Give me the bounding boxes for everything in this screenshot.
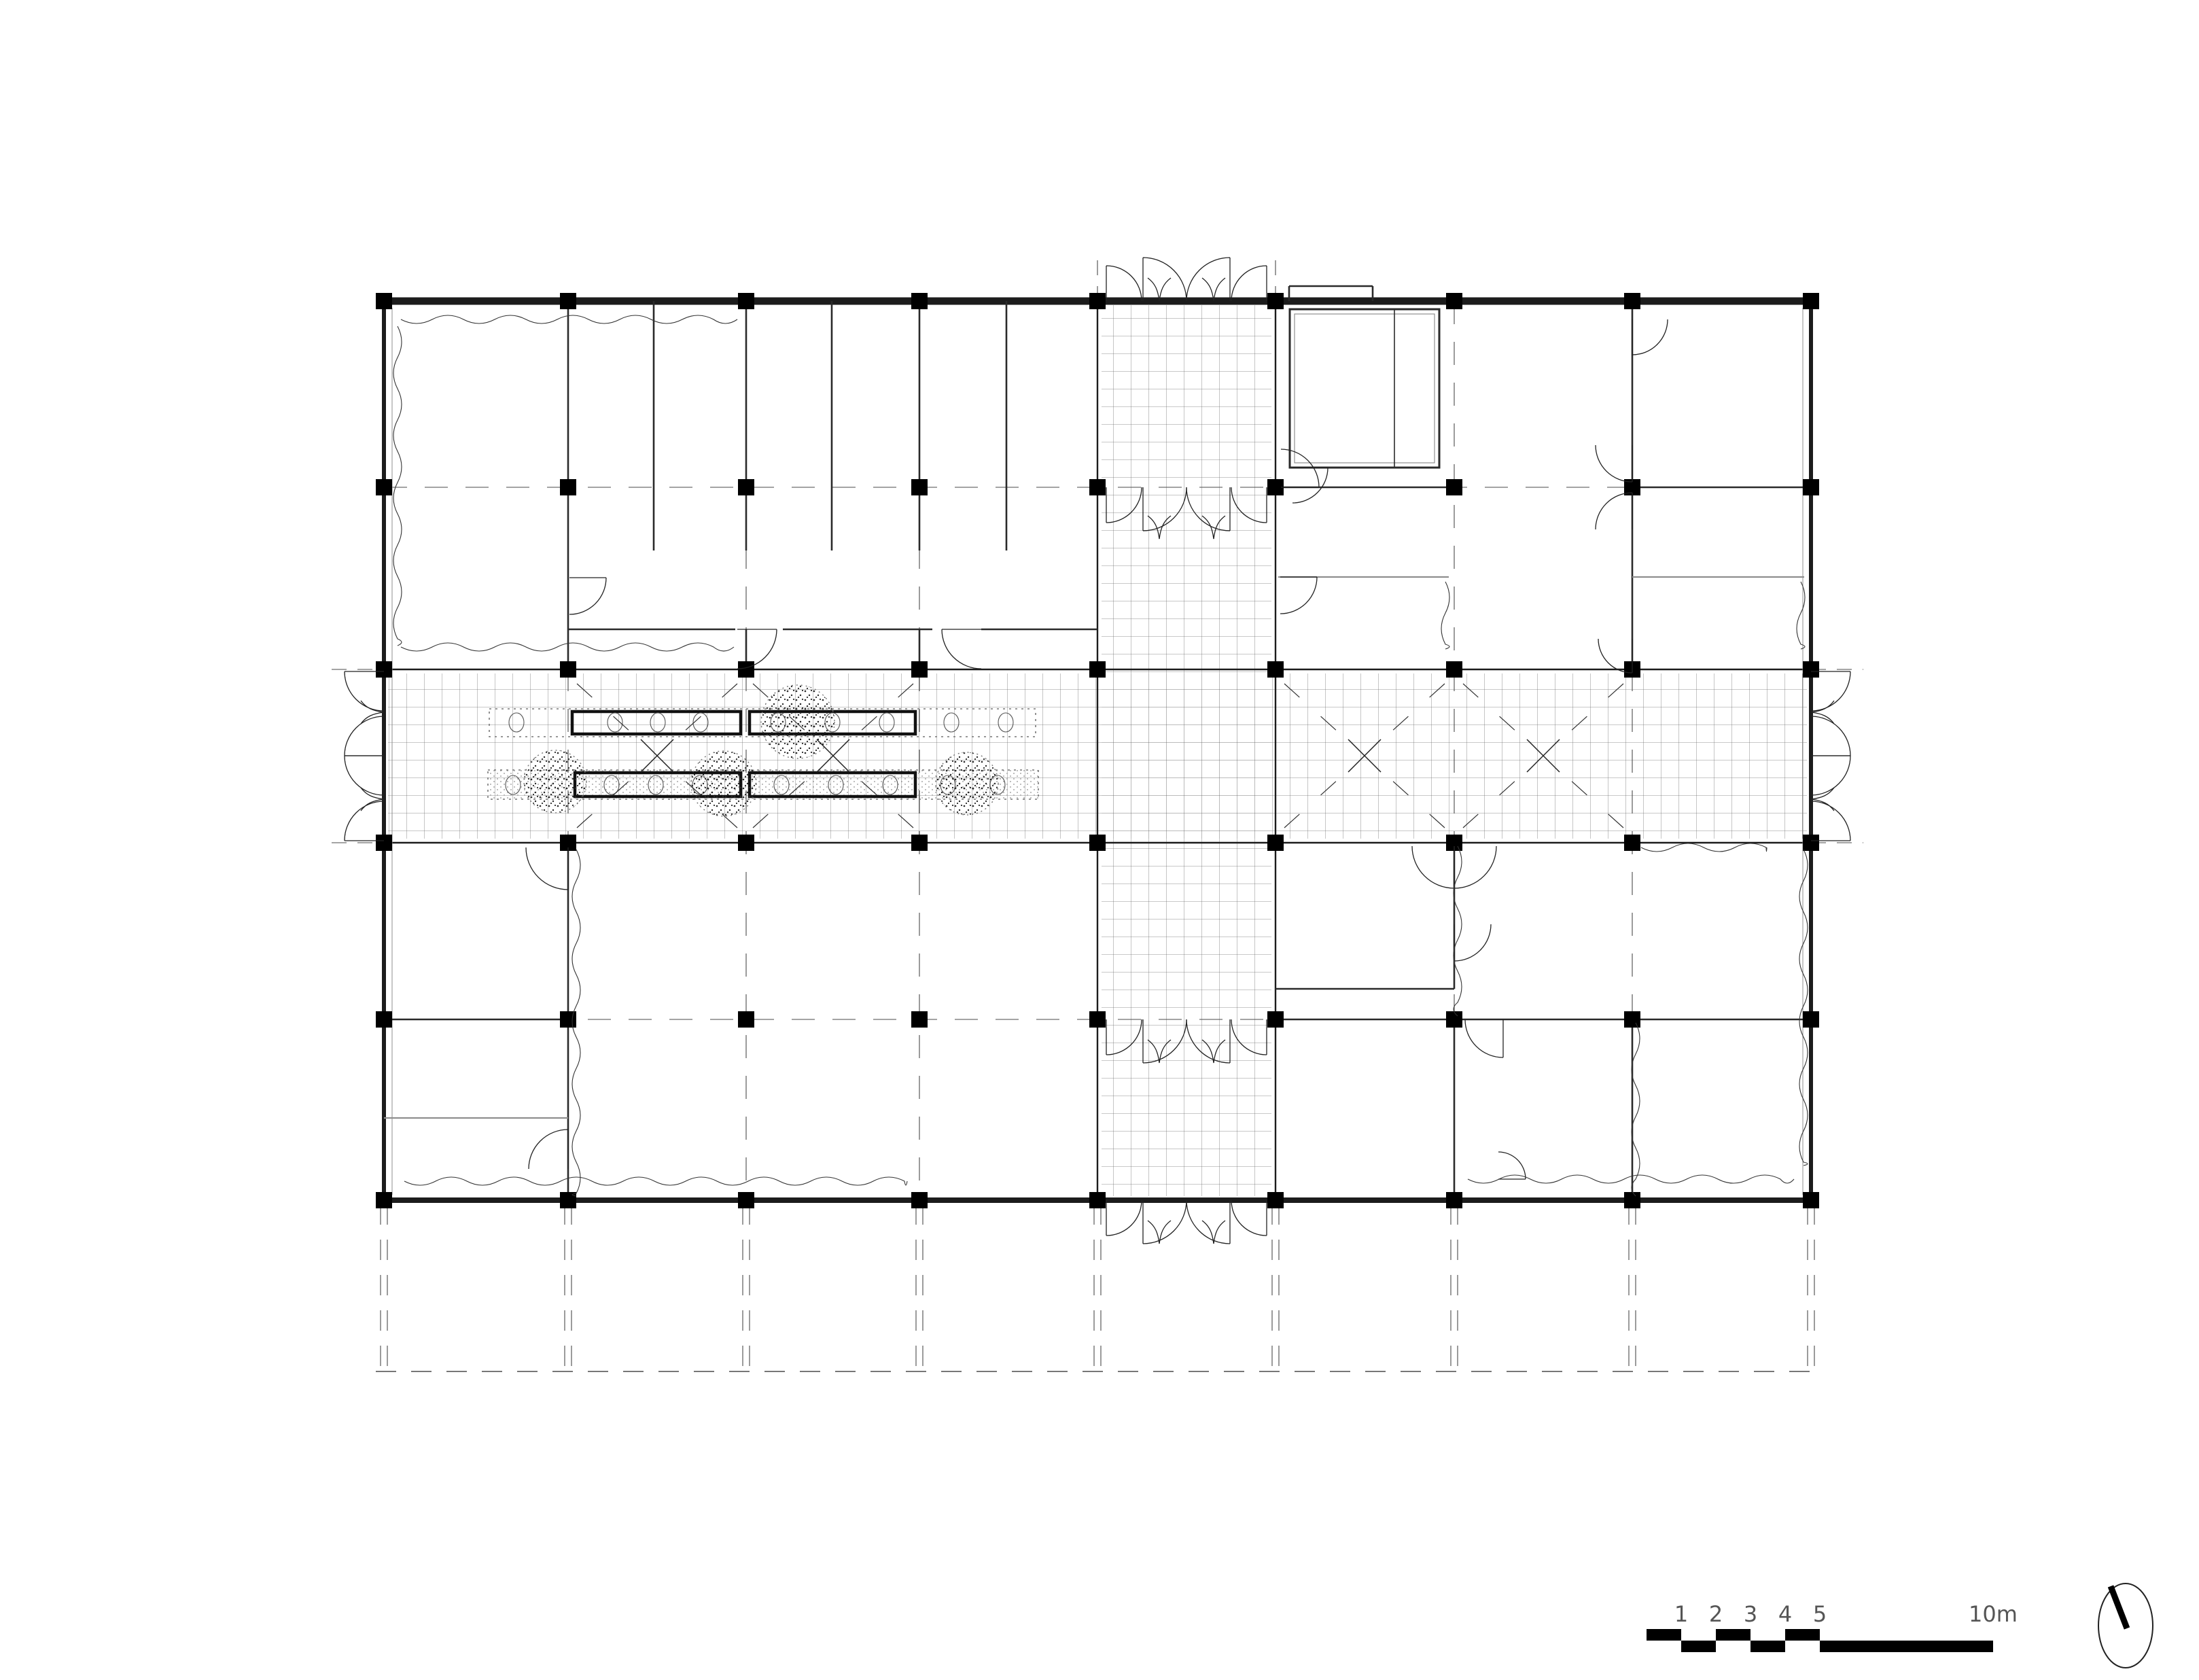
tree-symbol-core — [706, 766, 742, 802]
column-symbol — [376, 835, 392, 851]
column-symbol — [1089, 479, 1106, 495]
column-symbol — [1089, 293, 1106, 309]
scale-bar-segment — [1820, 1641, 1993, 1652]
column-symbol — [911, 835, 928, 851]
column-symbol — [1446, 293, 1462, 309]
column-symbol — [738, 1011, 754, 1028]
column-symbol — [1803, 1192, 1819, 1208]
scale-bar-segment — [1647, 1629, 1681, 1641]
column-symbol — [1089, 835, 1106, 851]
column-symbol — [738, 293, 754, 309]
column-symbol — [1803, 835, 1819, 851]
column-symbol — [1089, 1011, 1106, 1028]
column-symbol — [738, 835, 754, 851]
column-symbol — [1624, 1192, 1640, 1208]
scale-bar-label: 1 — [1674, 1601, 1688, 1627]
tree-symbol-core — [538, 765, 573, 799]
column-symbol — [738, 479, 754, 495]
column-symbol — [1267, 293, 1284, 309]
column-symbol — [376, 479, 392, 495]
column-symbol — [376, 1192, 392, 1208]
column-symbol — [1624, 1011, 1640, 1028]
column-symbol — [1267, 661, 1284, 678]
column-symbol — [738, 1192, 754, 1208]
column-symbol — [1446, 479, 1462, 495]
column-symbol — [911, 1011, 928, 1028]
column-symbol — [1446, 1011, 1462, 1028]
scale-bar-label: 2 — [1709, 1601, 1723, 1627]
column-symbol — [560, 661, 576, 678]
scale-bar-segment — [1785, 1629, 1820, 1641]
drawing-sheet: 1234510m — [0, 0, 2199, 1680]
scale-bar-segment — [1716, 1629, 1751, 1641]
column-symbol — [376, 661, 392, 678]
column-symbol — [1446, 661, 1462, 678]
column-symbol — [911, 479, 928, 495]
column-symbol — [1267, 1192, 1284, 1208]
column-symbol — [1446, 1192, 1462, 1208]
scale-bar-label: 5 — [1813, 1601, 1827, 1627]
column-symbol — [560, 1011, 576, 1028]
tree-symbol-core — [777, 701, 817, 741]
column-symbol — [1803, 293, 1819, 309]
column-symbol — [1267, 1011, 1284, 1028]
column-symbol — [911, 661, 928, 678]
column-symbol — [376, 293, 392, 309]
column-symbol — [560, 1192, 576, 1208]
column-symbol — [1803, 1011, 1819, 1028]
floor-plan-canvas: 1234510m — [0, 0, 2199, 1680]
scale-bar-segment — [1751, 1641, 1785, 1652]
scale-bar-label: 3 — [1744, 1601, 1757, 1627]
column-symbol — [911, 1192, 928, 1208]
tree-symbol-core — [950, 767, 985, 801]
column-symbol — [1089, 661, 1106, 678]
scale-bar-segment — [1681, 1641, 1716, 1652]
column-symbol — [1624, 835, 1640, 851]
column-symbol — [911, 293, 928, 309]
scale-bar-label: 10m — [1969, 1601, 2018, 1627]
column-symbol — [738, 661, 754, 678]
column-symbol — [560, 293, 576, 309]
column-symbol — [1089, 1192, 1106, 1208]
column-symbol — [1267, 835, 1284, 851]
column-symbol — [1803, 661, 1819, 678]
column-symbol — [560, 479, 576, 495]
column-symbol — [1624, 293, 1640, 309]
column-symbol — [1803, 479, 1819, 495]
scale-bar-label: 4 — [1778, 1601, 1792, 1627]
column-symbol — [376, 1011, 392, 1028]
